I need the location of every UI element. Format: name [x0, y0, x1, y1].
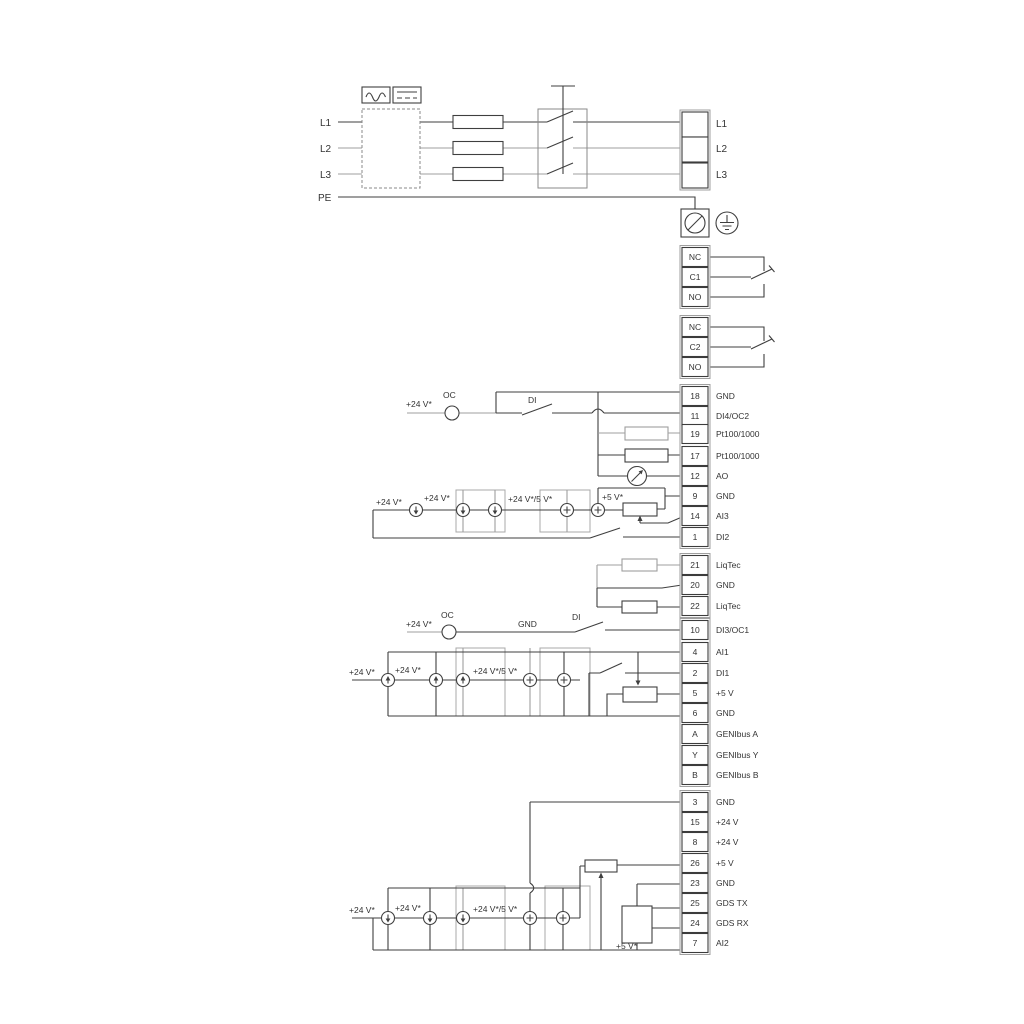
screw-terminal-icon: [681, 209, 709, 237]
terminal-strip-relay1: NCC1NO: [680, 246, 710, 309]
terminal-number: 12: [690, 471, 700, 481]
terminal-label: +24 V: [716, 837, 739, 847]
terminal-cell: [682, 137, 708, 162]
terminal-number: 10: [690, 625, 700, 635]
wire: [388, 652, 564, 716]
terminal-number: C1: [690, 272, 701, 282]
gds-sensor-icon: [622, 906, 652, 943]
fuse-icon-l3: [453, 168, 503, 181]
phase-input-label: L3: [320, 170, 332, 181]
wiper-arrow: [636, 681, 641, 686]
meter-icon: [628, 467, 647, 486]
terminal-number: 8: [693, 837, 698, 847]
terminal-label: +5 V: [716, 688, 734, 698]
switch-blades: [547, 111, 573, 174]
annotation: +24 V*: [395, 665, 421, 675]
terminal-label: DI2: [716, 532, 730, 542]
annotation: +24 V*: [349, 905, 375, 915]
annotation: +24 V*: [395, 903, 421, 913]
terminal-number: 7: [693, 938, 698, 948]
terminal-number: C2: [690, 342, 701, 352]
terminal-label: GND: [716, 491, 735, 501]
annotation: GND: [518, 619, 537, 629]
terminal-label: GDS TX: [716, 898, 748, 908]
terminal-number: 14: [690, 511, 700, 521]
terminal-number: NO: [689, 292, 702, 302]
annotation: +24 V*/5 V*: [508, 494, 553, 504]
terminal-label: AI1: [716, 647, 729, 657]
terminal-number: 24: [690, 918, 700, 928]
terminal-label: AI3: [716, 511, 729, 521]
phase-input-label: L2: [320, 144, 332, 155]
phase-output-label: L3: [716, 170, 728, 181]
terminal-strip-power_out: [680, 110, 710, 190]
terminal-cell: [682, 112, 708, 137]
terminal-number: Y: [692, 750, 698, 760]
terminal-label: +5 V: [716, 858, 734, 868]
terminal-label: AI2: [716, 938, 729, 948]
terminal-label: GDS RX: [716, 918, 749, 928]
terminal-number: 20: [690, 580, 700, 590]
terminal-number: 3: [693, 797, 698, 807]
liqtec-sensor-icon: [622, 559, 657, 571]
wiper-wire: [640, 517, 682, 523]
di3-circuit: +24 V* OC GND DI: [406, 610, 682, 639]
relay2-contact: [708, 327, 775, 367]
di3-switch-blade: [575, 622, 603, 632]
gds-ai2-circuit: +24 V* +24 V* +24 V*/5 V* +5 V*: [349, 802, 682, 951]
annotation: OC: [441, 610, 454, 620]
terminal-label: AO: [716, 471, 729, 481]
terminal-number: NO: [689, 362, 702, 372]
di4-pt100-ao-circuit: +24 V* OC DI: [406, 390, 682, 486]
relay1-contact: [708, 257, 775, 297]
pt100-sensor-icon: [625, 427, 668, 440]
terminal-number: NC: [689, 322, 701, 332]
di1-switch-blade: [600, 663, 622, 673]
annotation: +24 V*/5 V*: [473, 904, 518, 914]
terminal-label: GND: [716, 708, 735, 718]
relay2-blade: [751, 336, 775, 350]
open-collector-icon: [445, 406, 459, 420]
phase-output-label: L2: [716, 144, 728, 155]
terminal-strip-io_c: 3GND15+24 V8+24 V26+5 V23GND25GDS TX24GD…: [680, 791, 749, 955]
terminal-strip-liqtec: 21LiqTec20GND22LiqTec: [680, 554, 741, 618]
di4-switch-blade: [522, 404, 552, 415]
mains-power-section: L1 L2 L3 PE: [318, 86, 738, 237]
main-switch-icon: [538, 86, 587, 188]
terminal-number: 1: [693, 532, 698, 542]
terminal-strip-io_b: 10DI3/OC14AI12DI15+5 V6GNDAGENIbus AYGEN…: [680, 619, 759, 787]
terminal-number: 5: [693, 688, 698, 698]
annotation: DI: [528, 395, 537, 405]
dc-line-icon: [393, 87, 421, 103]
annotation: +24 V*: [424, 493, 450, 503]
wire: [496, 392, 682, 413]
terminal-number: 19: [690, 429, 700, 439]
di2-switch-blade: [590, 528, 620, 538]
terminal-number: 22: [690, 601, 700, 611]
terminal-number: A: [692, 729, 698, 739]
protective-earth-icon: [716, 212, 738, 234]
terminal-label: LiqTec: [716, 601, 741, 611]
terminal-number: 11: [691, 411, 700, 421]
filter-box: [362, 109, 420, 188]
fuse-icon-l2: [453, 142, 503, 155]
terminal-strip-relay2: NCC2NO: [680, 316, 710, 379]
phase-input-label: L1: [320, 118, 332, 129]
open-collector-icon: [442, 625, 456, 639]
terminal-label: +24 V: [716, 817, 739, 827]
relay1-blade: [751, 266, 775, 280]
terminal-number: 25: [690, 898, 700, 908]
annotation: +24 V*: [406, 619, 432, 629]
wire: [456, 630, 682, 632]
terminal-number: 6: [693, 708, 698, 718]
potentiometer-icon: [623, 687, 657, 702]
terminal-label: LiqTec: [716, 560, 741, 570]
terminal-label: GENIbus Y: [716, 750, 759, 760]
terminal-label: Pt100/1000: [716, 451, 760, 461]
annotation: OC: [443, 390, 456, 400]
annotation: +24 V*: [349, 667, 375, 677]
annotation: +5 V*: [602, 492, 624, 502]
terminal-number: 26: [690, 858, 700, 868]
pt100-sensor-icon: [625, 449, 668, 462]
terminal-number: 4: [693, 647, 698, 657]
wire: [463, 648, 530, 716]
terminal-label: DI3/OC1: [716, 625, 749, 635]
annotation: +24 V*: [376, 497, 402, 507]
wiring-diagram: L1 L2 L3 PE: [0, 0, 1024, 1024]
liqtec-circuit: [597, 559, 682, 613]
terminal-number: 17: [690, 451, 700, 461]
terminal-label: GENIbus A: [716, 729, 758, 739]
terminal-number: NC: [689, 252, 701, 262]
pe-input-label: PE: [318, 193, 332, 204]
terminal-number: 15: [690, 817, 700, 827]
terminal-label: DI1: [716, 668, 730, 678]
terminal-label: GND: [716, 580, 735, 590]
annotation: DI: [572, 612, 581, 622]
wiring-diagram-canvas: L1 L2 L3 PE: [0, 0, 1024, 1024]
terminal-number: B: [692, 770, 698, 780]
terminal-strip-io_a: 18GND11DI4/OC219Pt100/100017Pt100/100012…: [680, 385, 760, 549]
wiper-arrow: [599, 873, 604, 879]
phase-output-label: L1: [716, 119, 728, 130]
terminal-label: GND: [716, 878, 735, 888]
terminal-label: GND: [716, 391, 735, 401]
ai3-di2-circuit: +24 V* +24 V* +24 V*/5 V* +5 V*: [373, 488, 682, 538]
terminal-number: 23: [690, 878, 700, 888]
annotation: +24 V*/5 V*: [473, 666, 518, 676]
switch-handle: [551, 86, 575, 174]
fuse-icon-l1: [453, 116, 503, 129]
terminal-label: GENIbus B: [716, 770, 759, 780]
wire-pe: [338, 197, 695, 209]
terminal-number: 2: [693, 668, 698, 678]
annotation: +24 V*: [406, 399, 432, 409]
potentiometer-icon: [585, 860, 617, 872]
potentiometer-icon: [623, 503, 657, 516]
terminal-label: Pt100/1000: [716, 429, 760, 439]
terminal-label: GND: [716, 797, 735, 807]
terminal-label: DI4/OC2: [716, 411, 749, 421]
terminal-number: 9: [693, 491, 698, 501]
liqtec-sensor-icon: [622, 601, 657, 613]
ai1-di1-circuit: +24 V* +24 V* +24 V*/5 V*: [349, 648, 682, 716]
terminal-cell: [682, 163, 708, 188]
annotation: +5 V*: [616, 941, 638, 951]
terminal-number: 21: [690, 560, 700, 570]
terminal-number: 18: [690, 391, 700, 401]
